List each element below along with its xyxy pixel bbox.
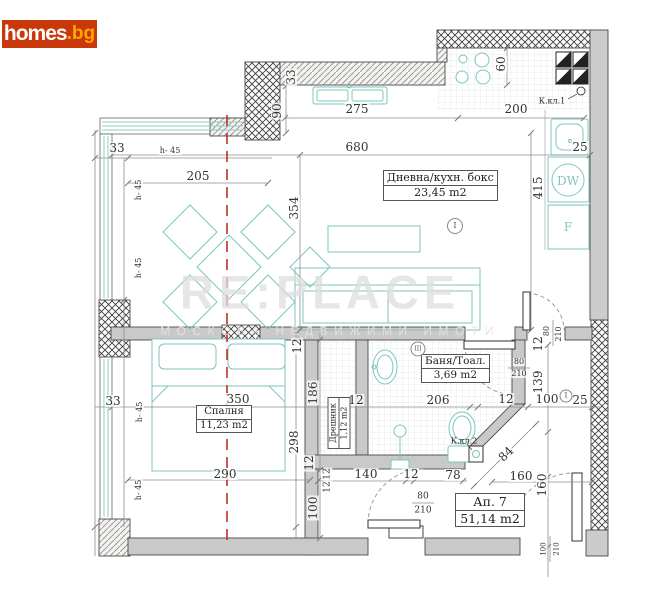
dimension-label: 12 xyxy=(497,393,514,405)
dimension-label: 12 xyxy=(303,454,315,471)
dimension-label: 33 xyxy=(285,68,297,85)
dimension-label: h- 45 xyxy=(135,179,143,202)
dimension-label: 25 xyxy=(571,141,588,153)
dimension-label: 80 xyxy=(513,358,525,366)
dimension-label: 100 xyxy=(307,496,319,521)
room-name: Дневна/кухн. бокс xyxy=(384,171,497,186)
apartment-area: 51,14 m2 xyxy=(456,511,524,527)
dimension-label: 78 xyxy=(444,469,461,481)
dimension-label: 60 xyxy=(495,55,507,72)
dishwasher-label: DW xyxy=(557,174,579,188)
dimension-label: 205 xyxy=(186,170,211,182)
apartment-number: Ап. 7 xyxy=(456,494,524,511)
dimension-label: 290 xyxy=(213,468,238,480)
room-area: 3,69 m2 xyxy=(422,369,489,382)
dimension-label: 12 xyxy=(532,335,544,352)
dimension-label: 275 xyxy=(345,103,370,115)
room-label-living: Дневна/кухн. бокс 23,45 m2 xyxy=(383,170,498,201)
room-area: 11,23 m2 xyxy=(197,420,251,433)
dimension-label: 200 xyxy=(504,103,529,115)
dimension-label: 210 xyxy=(510,370,527,378)
floorplan-page: homes.bg RE:PLACE МОСКОВА НЕДВИЖИМИ ИМОТ… xyxy=(0,0,656,600)
dimension-label: 298 xyxy=(288,430,300,455)
room-name: Спалня xyxy=(197,406,251,420)
room-label-closet: Дрешник 1,12 m2 xyxy=(328,397,351,449)
dimension-label: 354 xyxy=(288,196,300,221)
room-number-marker: 1 xyxy=(560,390,573,403)
room-label-bathroom: Баня/Тоал. 3,69 m2 xyxy=(421,354,490,383)
dimension-label: 100 xyxy=(535,393,560,405)
room-number-marker: III xyxy=(411,342,426,357)
dimension-label: 33 xyxy=(108,142,125,154)
room-name: Дрешник xyxy=(329,398,340,448)
dimension-label: 210 xyxy=(413,507,432,516)
dimension-label: 140 xyxy=(354,468,379,480)
dimension-label: 160 xyxy=(509,470,534,482)
dimension-label: 80 xyxy=(416,493,429,502)
apartment-label: Ап. 7 51,14 m2 xyxy=(455,493,525,527)
dimension-label: 186 xyxy=(307,381,319,406)
dimension-label: h- 45 xyxy=(136,401,144,424)
dimension-label: 80 xyxy=(543,325,551,337)
room-area: 23,45 m2 xyxy=(384,186,497,200)
dimension-label: 210 xyxy=(555,325,563,342)
dimension-label: 210 xyxy=(554,541,561,556)
dimension-label: 160 xyxy=(536,473,548,498)
dimension-label: 350 xyxy=(226,393,251,405)
room-label-bedroom: Спалня 11,23 m2 xyxy=(196,405,252,433)
room-name: Баня/Тоал. xyxy=(422,355,489,369)
dimension-label: 12 xyxy=(324,467,333,480)
dimension-label: 12 xyxy=(291,337,303,354)
dimension-label: 33 xyxy=(104,395,121,407)
room-area: 1,12 m2 xyxy=(340,398,350,448)
dimension-label: 90 xyxy=(271,102,283,119)
logo-brand: homes xyxy=(4,22,67,46)
dimension-label: 415 xyxy=(532,176,544,201)
dimension-label: h- 45 xyxy=(135,479,143,502)
dimension-label: 680 xyxy=(345,141,370,153)
dimension-label: h- 45 xyxy=(135,257,143,280)
floorplan-drawing xyxy=(0,0,656,600)
dimension-label: 100 xyxy=(541,541,548,556)
dimension-label: 12 xyxy=(402,468,419,480)
dimension-label: h- 45 xyxy=(159,147,182,155)
dimension-label: 25 xyxy=(571,394,588,406)
fridge-label: F xyxy=(564,220,572,234)
room-number-marker: I xyxy=(447,218,463,234)
dimension-label: 12 xyxy=(324,480,333,493)
dimension-label: 206 xyxy=(426,394,451,406)
dimension-label: 139 xyxy=(532,370,544,395)
shaft-label-2: К.кл.2 xyxy=(451,437,477,446)
logo-tld: .bg xyxy=(67,23,96,45)
homes-bg-logo[interactable]: homes.bg xyxy=(2,20,97,48)
shaft-label-1: К.кл.1 xyxy=(539,97,565,106)
